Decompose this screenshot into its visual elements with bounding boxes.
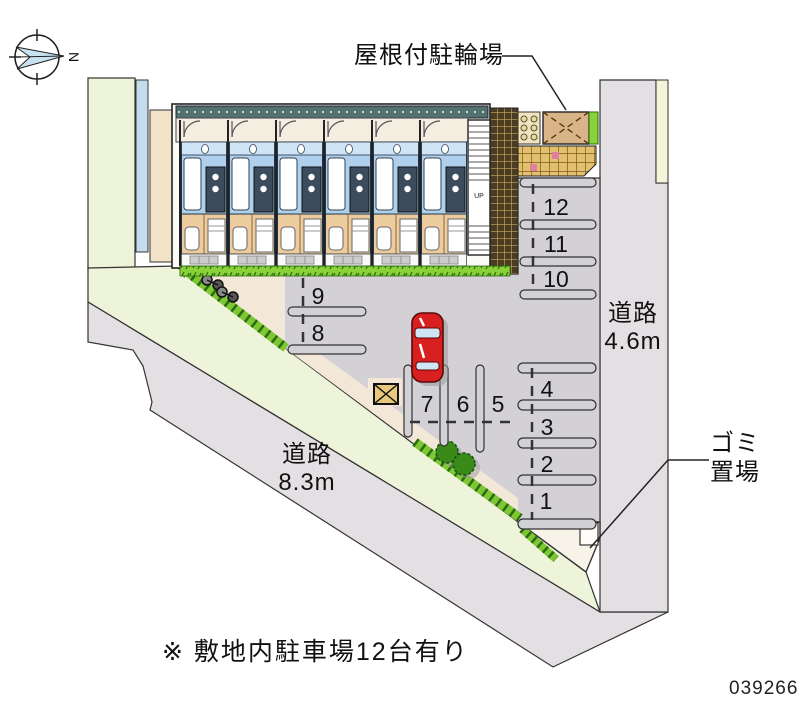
stall-number-4: 4 <box>541 376 554 402</box>
garbage-label: ゴミ 置場 <box>710 430 760 488</box>
bicycle-parking-label: 屋根付駐輪場 <box>354 42 504 70</box>
stall-number-8: 8 <box>312 320 325 346</box>
plan-number: 039266 <box>729 678 798 700</box>
stall-number-2: 2 <box>541 451 554 477</box>
bicycle-leader-line <box>502 56 566 110</box>
paved-patio <box>518 146 596 176</box>
stall-number-6: 6 <box>457 391 470 417</box>
road-right-name: 道路 <box>598 300 668 328</box>
stall-number-12: 12 <box>543 194 569 220</box>
building-hedge <box>180 266 510 276</box>
road-right-sidewalk <box>656 80 668 183</box>
stall-number-7: 7 <box>421 391 434 417</box>
road-diagonal-width: 8.3m <box>262 469 352 497</box>
stall-number-10: 10 <box>543 266 569 292</box>
left-parcel-strips <box>88 78 174 270</box>
stall-number-5: 5 <box>492 391 505 417</box>
site-plan: UP 12 11 10 9 8 7 6 5 <box>0 0 800 727</box>
stall-number-11: 11 <box>544 231 568 257</box>
paving-strip <box>490 108 518 274</box>
bike-roof <box>543 112 589 144</box>
compass: N <box>9 29 82 85</box>
road-diagonal-name: 道路 <box>262 441 352 469</box>
road-right-width: 4.6m <box>598 328 668 356</box>
road-right-label: 道路 4.6m <box>598 300 668 355</box>
stairs-up-label: UP <box>474 193 484 200</box>
staircase: UP <box>468 120 490 255</box>
stall-number-1: 1 <box>540 488 553 514</box>
garbage-label-line2: 置場 <box>710 459 760 488</box>
site-plan-canvas: UP 12 11 10 9 8 7 6 5 <box>0 0 800 727</box>
utility-box <box>374 384 398 404</box>
stall-number-9: 9 <box>312 283 325 309</box>
road-diagonal-label: 道路 8.3m <box>262 441 352 496</box>
compass-north-label: N <box>66 52 82 62</box>
stall-number-3: 3 <box>541 414 554 440</box>
car <box>412 313 448 386</box>
site-note: ※ 敷地内駐車場12台有り <box>162 638 469 667</box>
apartment-building: UP <box>172 104 510 276</box>
garbage-label-line1: ゴミ <box>710 430 760 459</box>
